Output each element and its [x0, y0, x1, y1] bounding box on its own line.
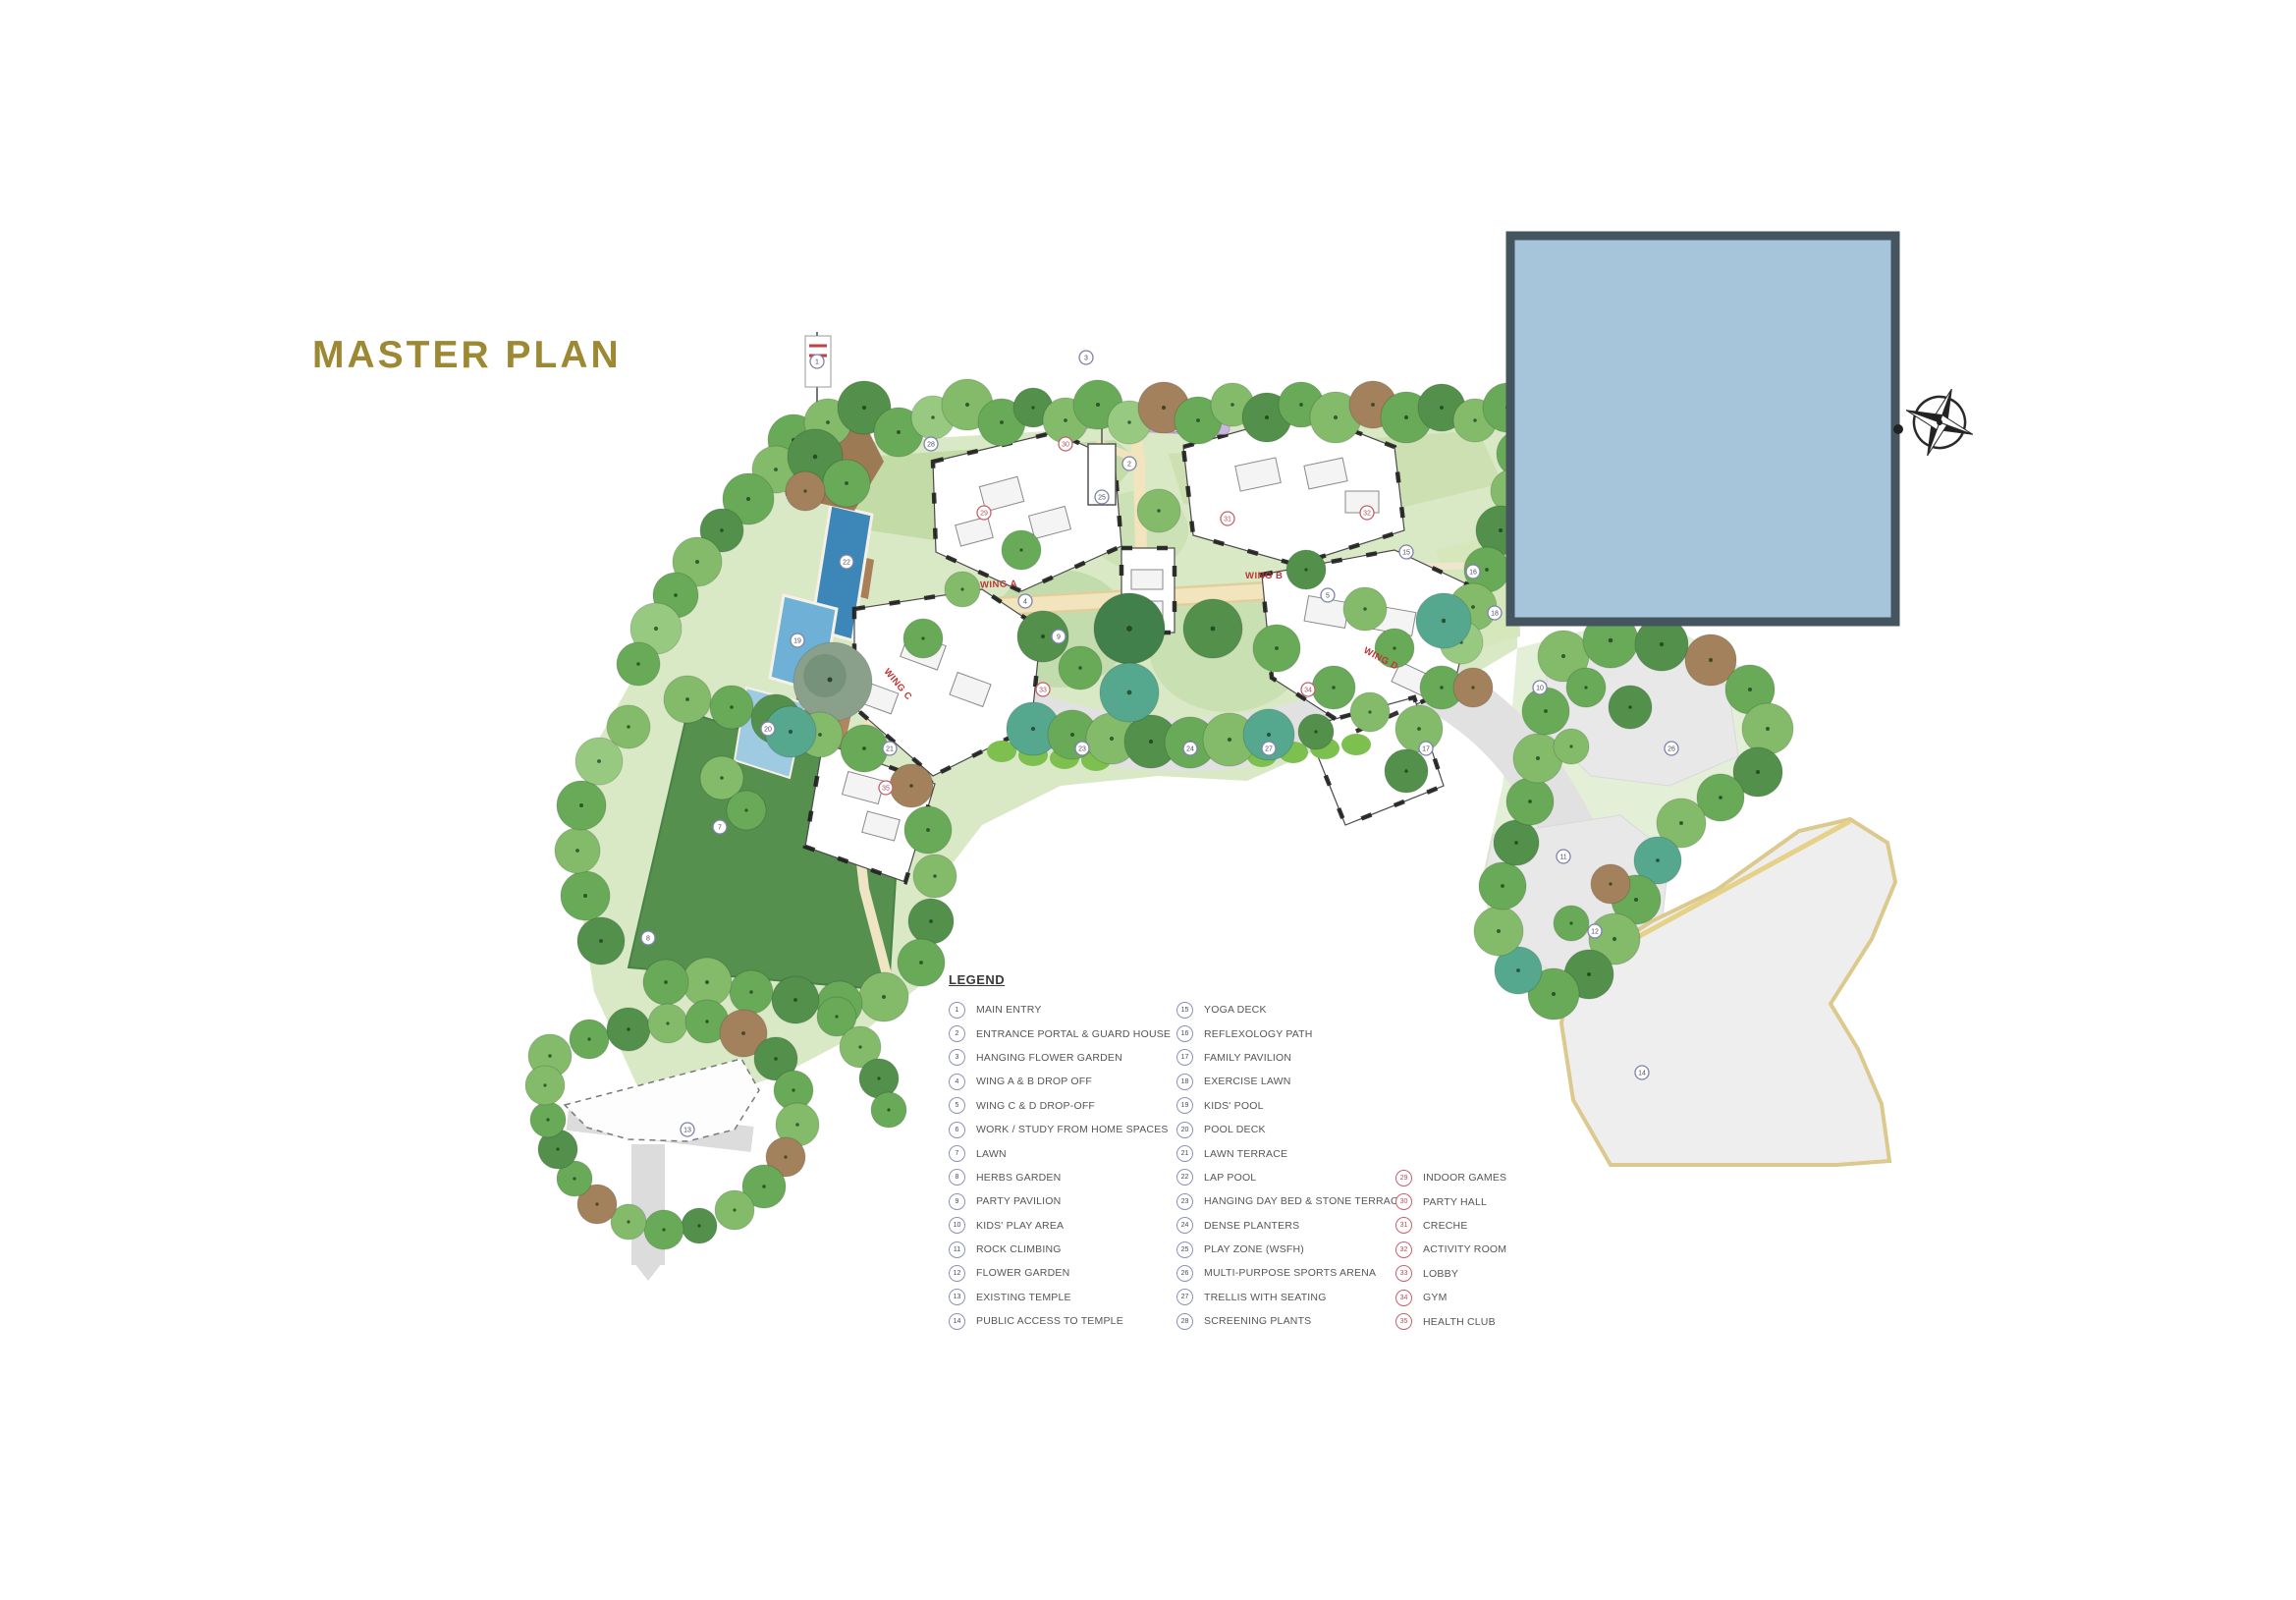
legend-item-label: HERBS GARDEN: [976, 1172, 1061, 1184]
svg-text:24: 24: [1186, 746, 1194, 753]
legend-item-label: MULTI-PURPOSE SPORTS ARENA: [1204, 1267, 1376, 1279]
legend-item-label: PARTY PAVILION: [976, 1195, 1061, 1207]
map-marker: 34: [1301, 683, 1315, 696]
legend-item-number: 7: [949, 1145, 965, 1162]
legend-item-number: 27: [1176, 1289, 1193, 1305]
map-marker: 31: [1221, 512, 1234, 525]
svg-text:5: 5: [1326, 593, 1330, 600]
legend-item: 8HERBS GARDEN: [949, 1166, 1171, 1189]
svg-text:19: 19: [793, 638, 801, 645]
legend-item-number: 32: [1395, 1241, 1412, 1258]
legend-item-label: PUBLIC ACCESS TO TEMPLE: [976, 1315, 1123, 1327]
legend-item: 3HANGING FLOWER GARDEN: [949, 1046, 1171, 1070]
legend-item: 33LOBBY: [1395, 1262, 1506, 1286]
legend-item: 18EXERCISE LAWN: [1176, 1070, 1405, 1093]
svg-text:30: 30: [1062, 442, 1069, 449]
legend-item: 29INDOOR GAMES: [1395, 1166, 1506, 1189]
svg-text:3: 3: [1084, 356, 1088, 362]
map-marker: 8: [641, 931, 655, 945]
svg-text:18: 18: [1491, 611, 1499, 618]
legend-item: 11ROCK CLIMBING: [949, 1238, 1171, 1261]
map-marker: 7: [713, 820, 727, 834]
svg-text:1: 1: [815, 359, 819, 366]
map-marker: 22: [840, 555, 853, 569]
svg-text:27: 27: [1265, 746, 1273, 753]
legend-item: 1MAIN ENTRY: [949, 998, 1171, 1021]
legend-item: 30PARTY HALL: [1395, 1189, 1506, 1213]
legend-item: 13EXISTING TEMPLE: [949, 1286, 1171, 1309]
legend-item-label: TRELLIS WITH SEATING: [1204, 1292, 1327, 1303]
svg-text:20: 20: [764, 727, 772, 734]
svg-text:11: 11: [1559, 855, 1566, 861]
legend-item-label: YOGA DECK: [1204, 1004, 1267, 1016]
site-plan-illustration: 1234578910111213141516171819202122232425…: [0, 0, 2296, 1600]
map-marker: 23: [1075, 742, 1089, 755]
map-marker: 16: [1466, 565, 1480, 579]
legend-item-label: INDOOR GAMES: [1423, 1172, 1506, 1184]
map-marker: 12: [1588, 924, 1602, 938]
legend-item-number: 6: [949, 1122, 965, 1138]
svg-text:7: 7: [718, 825, 722, 832]
map-marker: 4: [1018, 594, 1032, 608]
legend-item-number: 28: [1176, 1313, 1193, 1330]
legend-item: 12FLOWER GARDEN: [949, 1261, 1171, 1285]
map-marker: 1: [810, 355, 824, 368]
legend-item-number: 19: [1176, 1097, 1193, 1114]
map-marker: 11: [1557, 850, 1570, 863]
legend-item-number: 5: [949, 1097, 965, 1114]
legend-item-label: LOBBY: [1423, 1268, 1458, 1280]
legend-item-label: PLAY ZONE (WSFH): [1204, 1243, 1304, 1255]
legend-item-label: HEALTH CLUB: [1423, 1316, 1496, 1328]
legend-item-label: EXERCISE LAWN: [1204, 1076, 1291, 1087]
svg-text:23: 23: [1078, 746, 1086, 753]
legend-item: 23HANGING DAY BED & STONE TERRACE: [1176, 1189, 1405, 1213]
svg-text:25: 25: [1098, 495, 1106, 502]
svg-text:26: 26: [1667, 746, 1675, 753]
legend-item-number: 31: [1395, 1217, 1412, 1234]
map-marker: 25: [1095, 490, 1109, 504]
legend-item-label: KIDS' PLAY AREA: [976, 1220, 1064, 1232]
legend-item-label: WING C & D DROP-OFF: [976, 1100, 1095, 1112]
legend-item-number: 29: [1395, 1170, 1412, 1186]
legend-item: 4WING A & B DROP OFF: [949, 1070, 1171, 1093]
legend-item: 21LAWN TERRACE: [1176, 1141, 1405, 1165]
legend-item-label: ENTRANCE PORTAL & GUARD HOUSE: [976, 1028, 1171, 1040]
map-marker: 35: [879, 781, 893, 795]
legend-item-number: 30: [1395, 1193, 1412, 1210]
legend-item-label: DENSE PLANTERS: [1204, 1220, 1299, 1232]
legend-column: 15YOGA DECK16REFLEXOLOGY PATH17FAMILY PA…: [1176, 998, 1405, 1333]
legend-item-number: 14: [949, 1313, 965, 1330]
map-marker: 33: [1036, 683, 1050, 696]
map-marker: 21: [883, 742, 897, 755]
legend-item: 15YOGA DECK: [1176, 998, 1405, 1021]
legend-item-number: 35: [1395, 1313, 1412, 1330]
wing-label: WING B: [1245, 571, 1283, 581]
legend-item-number: 3: [949, 1049, 965, 1066]
legend-item-label: EXISTING TEMPLE: [976, 1292, 1071, 1303]
legend-item: 22LAP POOL: [1176, 1166, 1405, 1189]
svg-text:17: 17: [1422, 746, 1430, 753]
map-marker: 17: [1419, 742, 1433, 755]
map-marker: 14: [1635, 1066, 1649, 1079]
legend-item-label: REFLEXOLOGY PATH: [1204, 1028, 1313, 1040]
legend-item-number: 22: [1176, 1169, 1193, 1186]
legend-item-label: LAWN TERRACE: [1204, 1148, 1287, 1160]
legend-item: 14PUBLIC ACCESS TO TEMPLE: [949, 1309, 1171, 1333]
legend-item-label: HANGING DAY BED & STONE TERRACE: [1204, 1195, 1405, 1207]
legend-item-label: ROCK CLIMBING: [976, 1243, 1062, 1255]
map-marker: 28: [924, 437, 938, 451]
svg-text:22: 22: [843, 560, 850, 567]
legend-item-label: POOL DECK: [1204, 1124, 1266, 1135]
wing-label: WING A: [980, 579, 1017, 590]
svg-text:4: 4: [1023, 599, 1027, 606]
svg-text:14: 14: [1638, 1071, 1646, 1077]
legend-item-label: KIDS' POOL: [1204, 1100, 1264, 1112]
legend-item: 5WING C & D DROP-OFF: [949, 1094, 1171, 1118]
legend-column: 1MAIN ENTRY2ENTRANCE PORTAL & GUARD HOUS…: [949, 998, 1171, 1333]
legend-item: 16REFLEXOLOGY PATH: [1176, 1021, 1405, 1045]
legend-item-number: 1: [949, 1002, 965, 1019]
legend-item-number: 23: [1176, 1193, 1193, 1210]
legend-item-label: PARTY HALL: [1423, 1196, 1487, 1208]
legend-item-number: 26: [1176, 1265, 1193, 1282]
svg-text:34: 34: [1304, 688, 1312, 694]
legend-item: 7LAWN: [949, 1141, 1171, 1165]
legend-item-number: 18: [1176, 1074, 1193, 1090]
legend-item-label: WORK / STUDY FROM HOME SPACES: [976, 1124, 1169, 1135]
legend-item-number: 17: [1176, 1049, 1193, 1066]
map-marker: 5: [1321, 588, 1335, 602]
legend-item-number: 9: [949, 1193, 965, 1210]
svg-text:28: 28: [927, 442, 935, 449]
legend-item: 9PARTY PAVILION: [949, 1189, 1171, 1213]
svg-text:16: 16: [1469, 570, 1477, 577]
map-marker: 29: [977, 506, 991, 520]
svg-text:10: 10: [1536, 686, 1544, 692]
legend-item-number: 8: [949, 1169, 965, 1186]
map-marker: 3: [1079, 351, 1093, 364]
legend-item-number: 20: [1176, 1122, 1193, 1138]
svg-text:35: 35: [882, 786, 890, 793]
map-marker: 15: [1399, 545, 1413, 559]
legend-item-number: 10: [949, 1217, 965, 1234]
legend-item: 19KIDS' POOL: [1176, 1094, 1405, 1118]
map-marker: 26: [1665, 742, 1678, 755]
legend-item-label: CRECHE: [1423, 1220, 1468, 1232]
lake: [1510, 236, 1895, 622]
legend-item-number: 15: [1176, 1002, 1193, 1019]
legend-item-number: 25: [1176, 1241, 1193, 1258]
legend-item: 27TRELLIS WITH SEATING: [1176, 1286, 1405, 1309]
legend-item-label: FLOWER GARDEN: [976, 1267, 1069, 1279]
compass-icon: [1894, 377, 1985, 468]
svg-text:9: 9: [1057, 634, 1061, 641]
legend-item-number: 2: [949, 1025, 965, 1042]
legend-item: 32ACTIVITY ROOM: [1395, 1238, 1506, 1261]
legend-item-number: 24: [1176, 1217, 1193, 1234]
legend: LEGEND 1MAIN ENTRY2ENTRANCE PORTAL & GUA…: [949, 972, 1597, 1355]
map-marker: 2: [1122, 457, 1136, 470]
legend-item-number: 21: [1176, 1145, 1193, 1162]
svg-text:8: 8: [646, 936, 650, 943]
legend-item-label: LAP POOL: [1204, 1172, 1256, 1184]
legend-item: 24DENSE PLANTERS: [1176, 1214, 1405, 1238]
map-marker: 13: [681, 1123, 694, 1136]
map-marker: 32: [1360, 506, 1374, 520]
svg-text:29: 29: [980, 511, 988, 518]
legend-item-label: SCREENING PLANTS: [1204, 1315, 1311, 1327]
legend-item: 20POOL DECK: [1176, 1118, 1405, 1141]
map-marker: 27: [1262, 742, 1276, 755]
legend-title: LEGEND: [949, 972, 1005, 987]
legend-item-number: 12: [949, 1265, 965, 1282]
master-plan-page: MASTER PLAN: [0, 0, 2296, 1600]
legend-item-label: ACTIVITY ROOM: [1423, 1243, 1506, 1255]
lake-group: [1510, 236, 1903, 622]
svg-text:15: 15: [1402, 550, 1410, 557]
svg-text:32: 32: [1363, 511, 1371, 518]
legend-item-label: HANGING FLOWER GARDEN: [976, 1052, 1122, 1064]
legend-item-number: 33: [1395, 1265, 1412, 1282]
map-marker: 24: [1183, 742, 1197, 755]
legend-item-label: GYM: [1423, 1292, 1448, 1303]
svg-text:13: 13: [683, 1128, 691, 1134]
legend-item: 6WORK / STUDY FROM HOME SPACES: [949, 1118, 1171, 1141]
legend-item: 31CRECHE: [1395, 1214, 1506, 1238]
legend-item: 2ENTRANCE PORTAL & GUARD HOUSE: [949, 1021, 1171, 1045]
legend-item: 17FAMILY PAVILION: [1176, 1046, 1405, 1070]
svg-text:33: 33: [1039, 688, 1047, 694]
map-marker: 20: [761, 722, 775, 736]
map-marker: 19: [791, 634, 804, 647]
legend-item: 35HEALTH CLUB: [1395, 1309, 1506, 1333]
legend-item: 25PLAY ZONE (WSFH): [1176, 1238, 1405, 1261]
legend-item-number: 13: [949, 1289, 965, 1305]
legend-item-number: 34: [1395, 1290, 1412, 1306]
legend-item-number: 11: [949, 1241, 965, 1258]
map-marker: 10: [1533, 681, 1547, 694]
legend-item-label: WING A & B DROP OFF: [976, 1076, 1092, 1087]
legend-item-label: MAIN ENTRY: [976, 1004, 1042, 1016]
svg-text:21: 21: [886, 746, 894, 753]
svg-text:12: 12: [1591, 929, 1599, 936]
legend-item-label: LAWN: [976, 1148, 1007, 1160]
legend-item-number: 4: [949, 1074, 965, 1090]
svg-text:2: 2: [1127, 462, 1131, 469]
map-marker: 9: [1052, 630, 1066, 643]
map-marker: 30: [1059, 437, 1072, 451]
legend-item: 34GYM: [1395, 1286, 1506, 1309]
map-marker: 18: [1488, 606, 1502, 620]
svg-text:31: 31: [1224, 517, 1231, 524]
legend-item: 10KIDS' PLAY AREA: [949, 1214, 1171, 1238]
legend-item: 28SCREENING PLANTS: [1176, 1309, 1405, 1333]
legend-item-label: FAMILY PAVILION: [1204, 1052, 1291, 1064]
legend-item-number: 16: [1176, 1025, 1193, 1042]
legend-item: 26MULTI-PURPOSE SPORTS ARENA: [1176, 1261, 1405, 1285]
legend-column: 29INDOOR GAMES30PARTY HALL31CRECHE32ACTI…: [1395, 1166, 1506, 1334]
